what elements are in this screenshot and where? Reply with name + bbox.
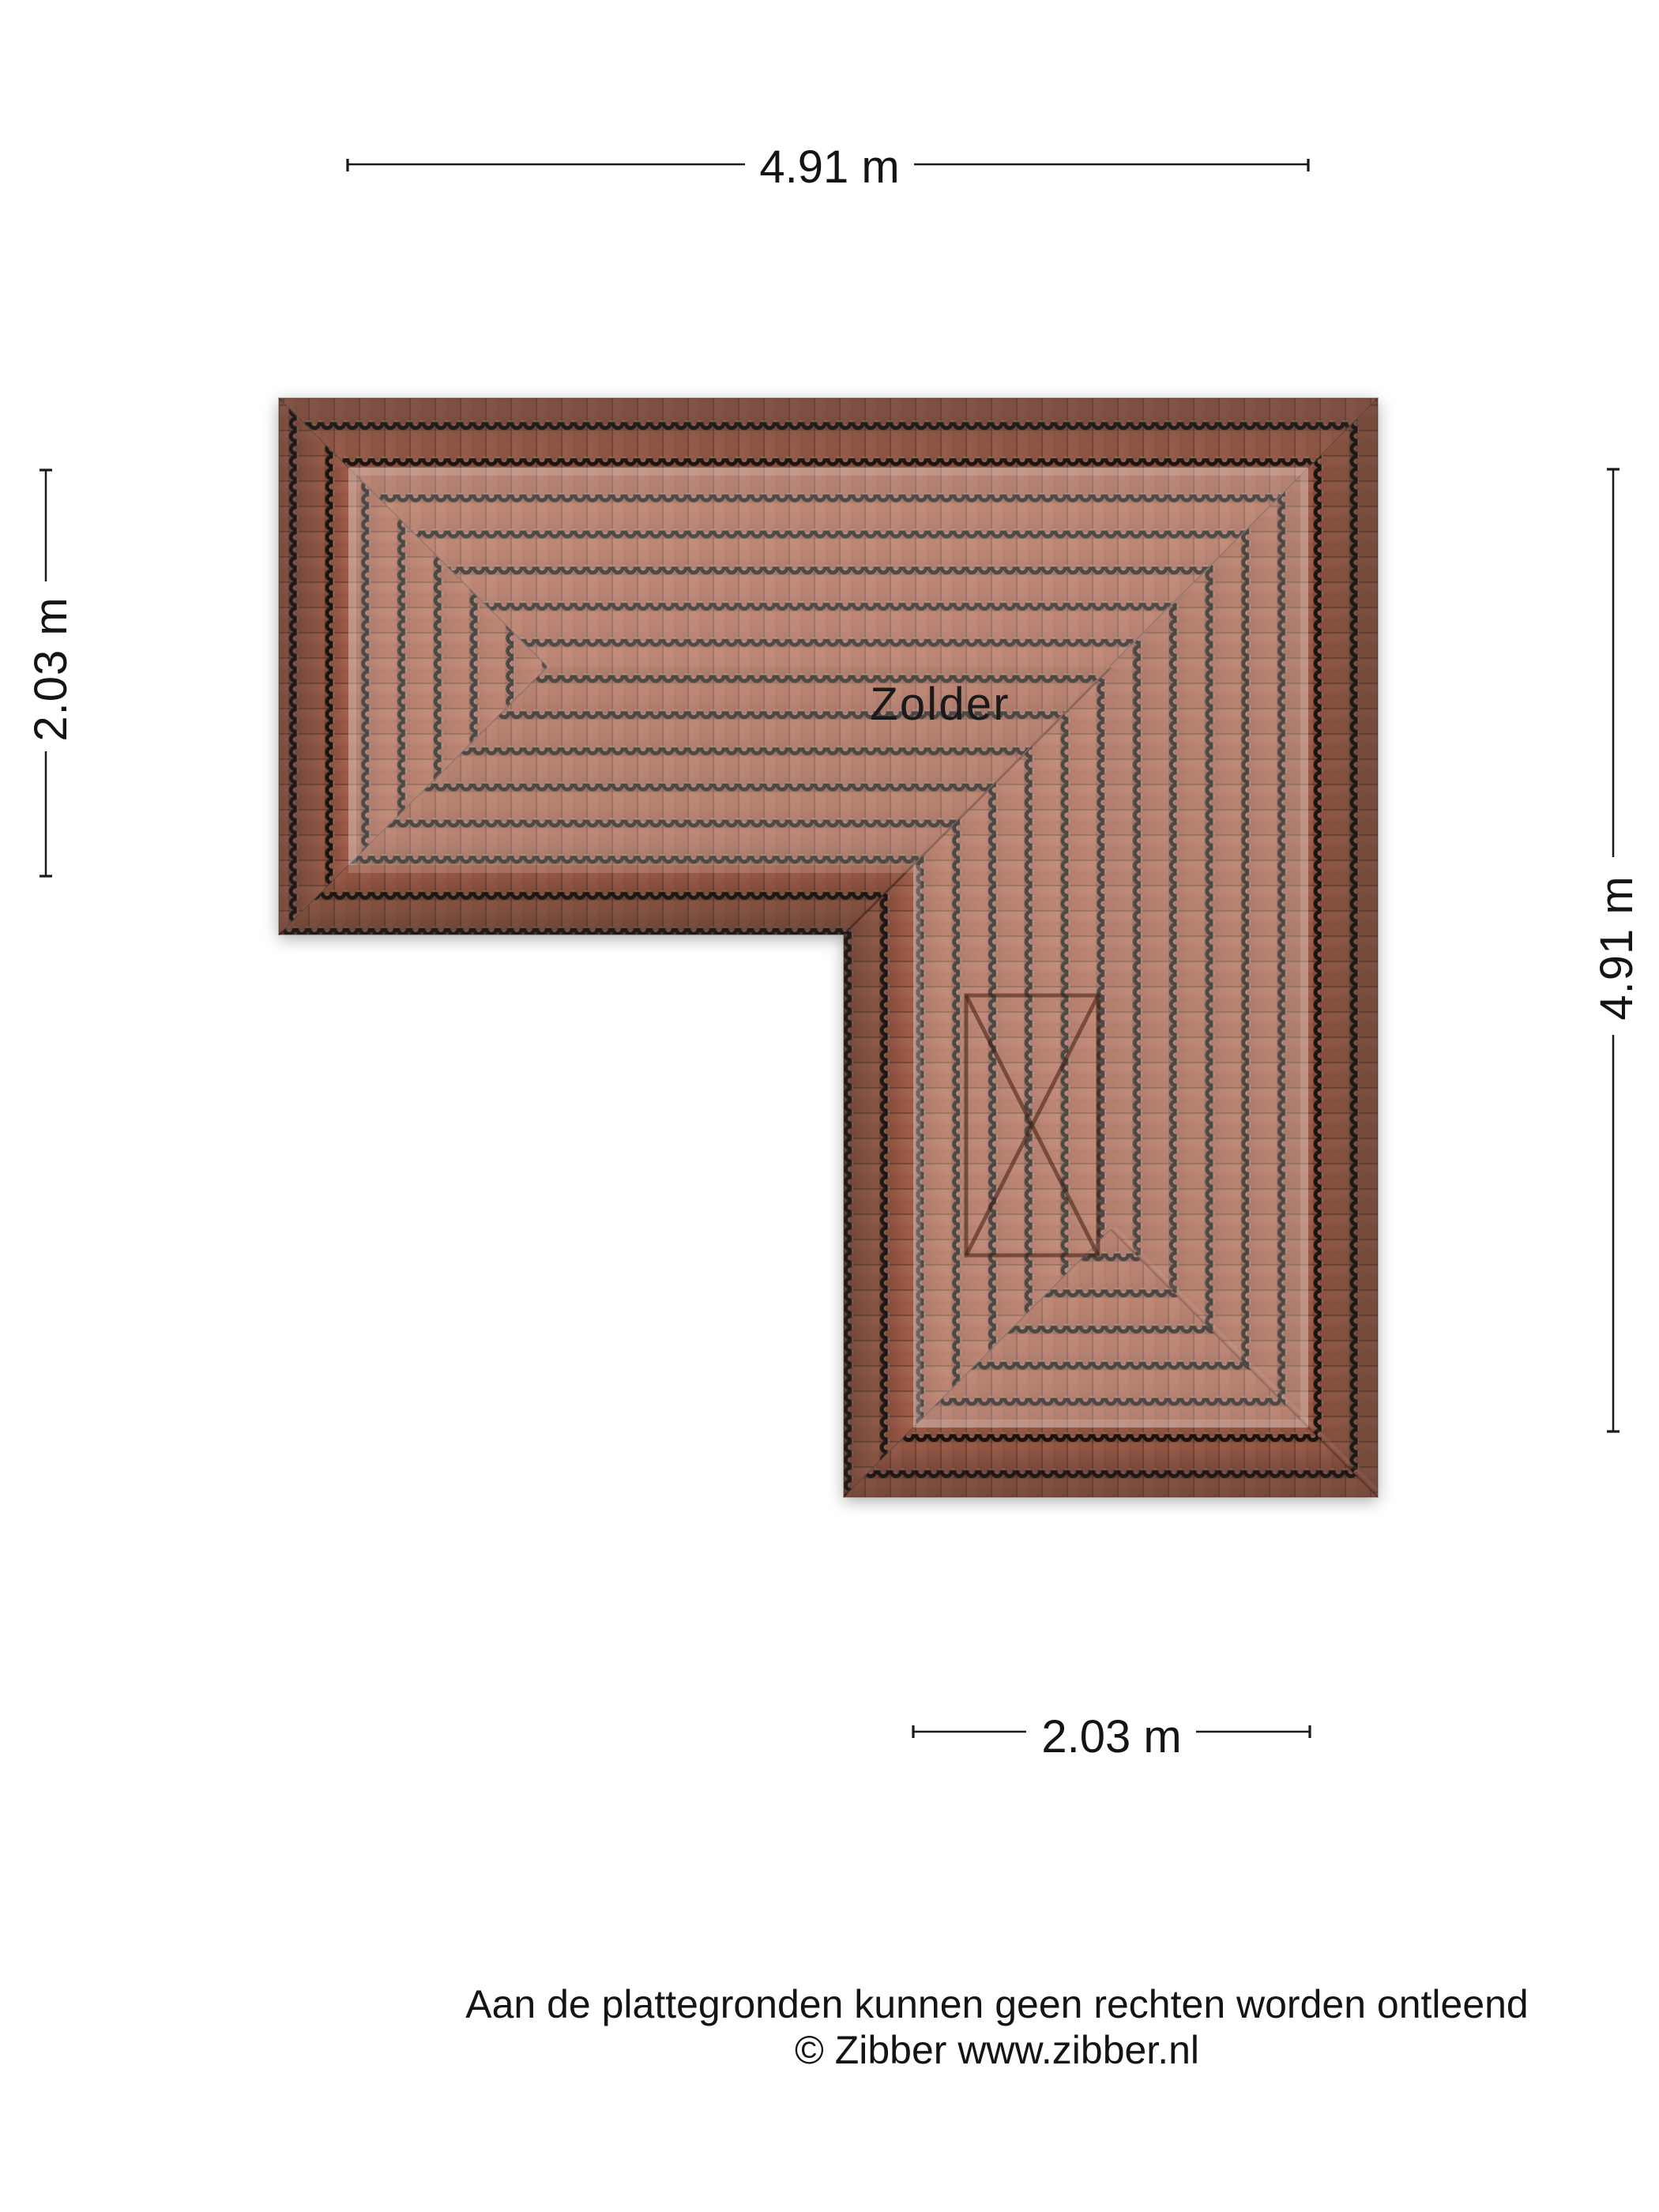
svg-text:2.03 m: 2.03 m	[25, 596, 77, 741]
svg-text:Aan de plattegronden kunnen ge: Aan de plattegronden kunnen geen rechten…	[465, 1982, 1529, 2026]
svg-text:4.91 m: 4.91 m	[1591, 875, 1642, 1020]
svg-text:© Zibber www.zibber.nl: © Zibber www.zibber.nl	[795, 2028, 1199, 2072]
svg-text:2.03 m: 2.03 m	[1041, 1711, 1181, 1762]
svg-text:Zolder: Zolder	[870, 679, 1010, 730]
svg-text:4.91 m: 4.91 m	[759, 141, 899, 193]
